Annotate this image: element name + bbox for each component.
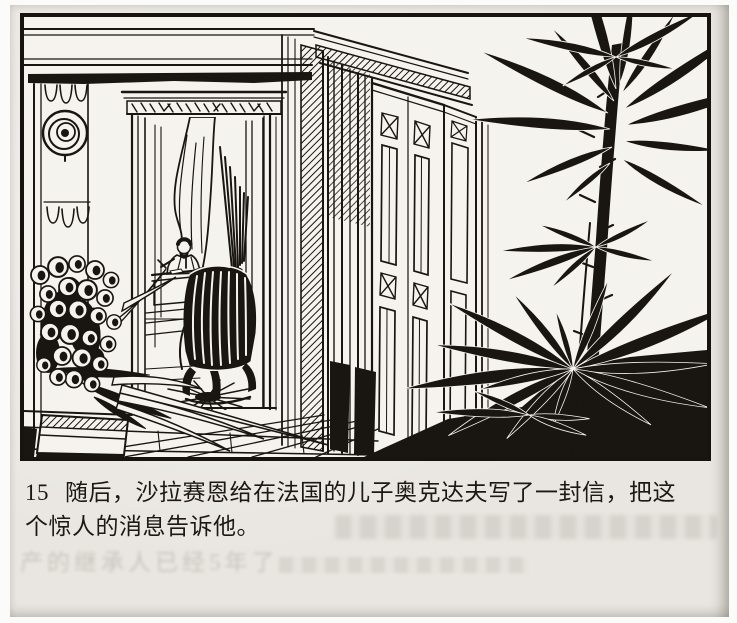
wall-corner (282, 35, 323, 451)
bleedthrough-smear (279, 557, 529, 573)
door-interior (145, 117, 256, 416)
bleedthrough-text: 产的继承人已经5年了 (20, 550, 279, 575)
comic-panel-frame (20, 13, 711, 461)
comic-panel-illustration (24, 17, 707, 457)
caption-text-line-2: 个惊人的消息告诉他。 (25, 514, 260, 539)
scanned-page: 15随后，沙拉赛恩给在法国的儿子奥克达夫写了一封信，把这 个惊人的消息告诉他。 … (0, 0, 737, 623)
caption-text-line-1: 随后，沙拉赛恩给在法国的儿子奥克达夫写了一封信，把这 (65, 480, 676, 505)
bleedthrough-smudge-1 (335, 515, 717, 539)
folding-paneled-doors (328, 57, 488, 457)
pedestal (24, 415, 128, 457)
rosette-ornament (43, 111, 87, 161)
bleedthrough-smudge-2: 产的继承人已经5年了 (20, 543, 580, 569)
panel-number: 15 (25, 480, 49, 505)
paper-background: 15随后，沙拉赛恩给在法国的儿子奥克达夫写了一封信，把这 个惊人的消息告诉他。 … (10, 5, 729, 617)
caption-line-1: 15随后，沙拉赛恩给在法国的儿子奥克达夫写了一封信，把这 (25, 476, 725, 510)
